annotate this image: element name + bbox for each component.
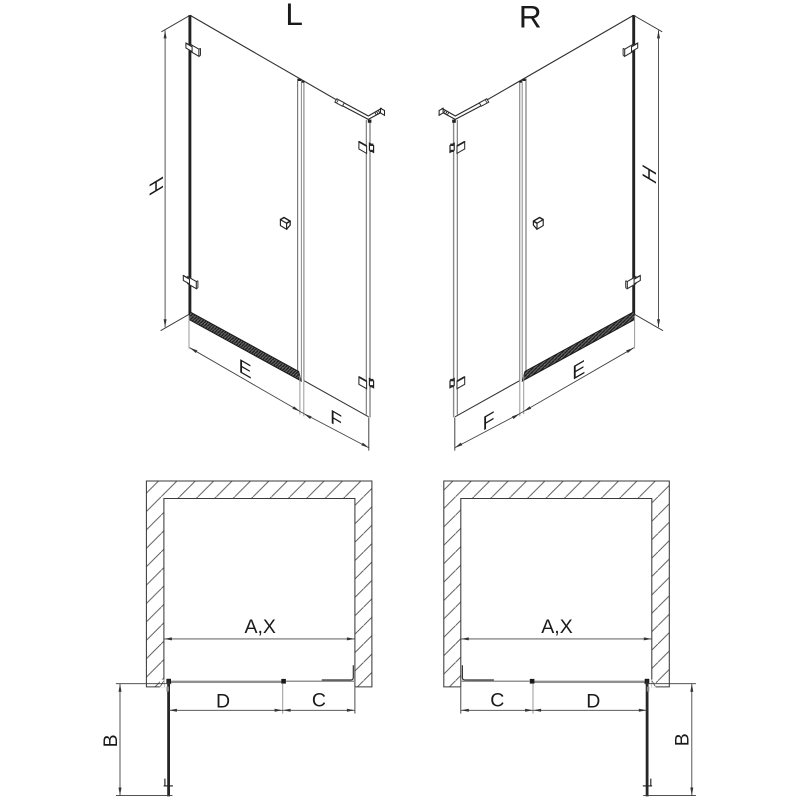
- svg-text:C: C: [490, 690, 504, 712]
- svg-text:L: L: [285, 0, 303, 32]
- svg-text:C: C: [312, 690, 326, 712]
- svg-text:D: D: [586, 691, 600, 713]
- svg-text:R: R: [519, 0, 542, 35]
- svg-text:B: B: [672, 733, 694, 746]
- svg-text:A,X: A,X: [541, 616, 572, 638]
- svg-text:A,X: A,X: [244, 616, 275, 638]
- svg-text:D: D: [216, 691, 230, 713]
- svg-text:B: B: [100, 734, 122, 747]
